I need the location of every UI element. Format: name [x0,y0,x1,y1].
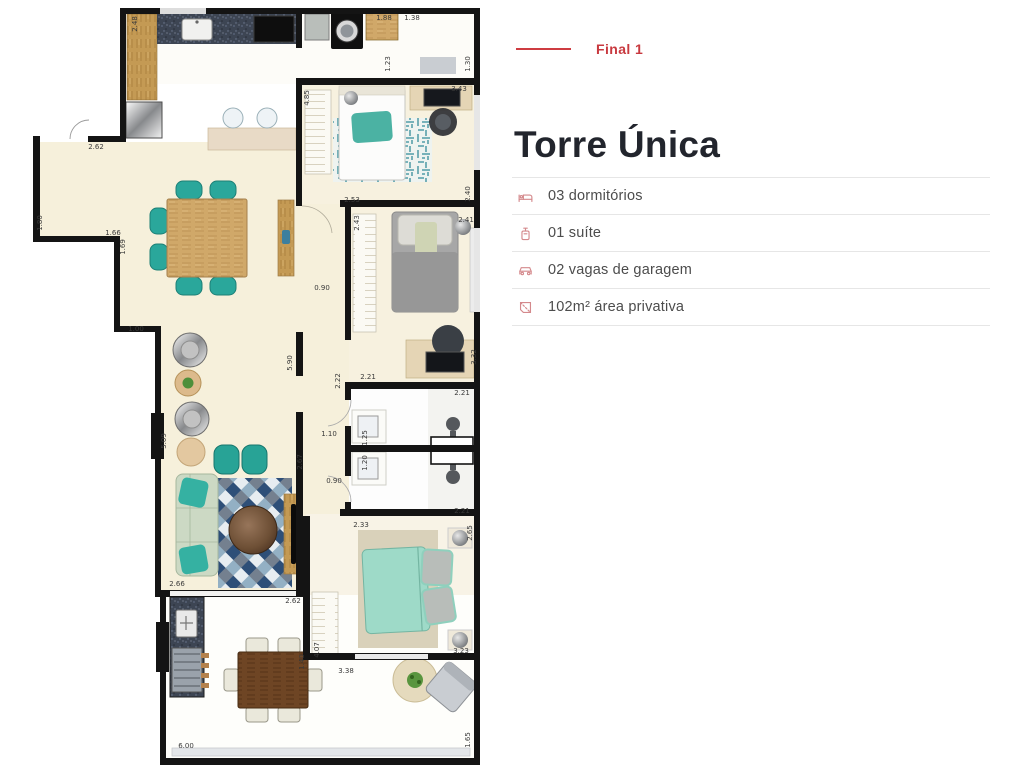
accent-chair [242,445,267,474]
feature-item: 01 suíte [512,215,990,252]
dimension-label: 2.43 [353,215,361,231]
info-panel: Final 1 Torre Única 03 dormitórios01 suí… [512,0,990,768]
suite-icon [517,225,534,242]
dimension-label: 0.90 [326,477,342,485]
dimension-label: 1.20 [361,455,369,471]
cooktop [254,16,294,42]
dimension-label: 1.25 [361,430,369,446]
dimension-label: 4.85 [303,90,311,106]
accent-line [516,48,571,50]
dimension-label: 1.38 [404,14,420,22]
balustrade [172,748,470,756]
shower-head [446,470,460,484]
dimension-label: 2.65 [466,525,474,541]
dimension-label: 2.21 [360,373,376,381]
dimension-label: 1.00 [128,325,144,333]
dimension-label: 3.38 [338,667,354,675]
dimension-label: 1.88 [376,14,392,22]
pillow [177,477,209,509]
pillow [421,586,456,625]
door-arc [70,120,89,139]
dimension-label: 0.90 [314,284,330,292]
dimension-label: 1.65 [464,732,472,748]
dining-table [167,199,247,277]
pillow [351,111,393,144]
dimension-label: 1.30 [464,56,472,72]
page-title: Torre Única [514,124,720,166]
dimension-label: 3.32 [470,349,478,365]
feature-label: 03 dormitórios [548,188,643,204]
dimension-label: 3.43 [451,85,467,93]
coffee-table [229,506,277,554]
area-icon [517,299,534,316]
floor-plan: 2.481.881.381.231.303.434.852.532.402.43… [0,0,500,768]
dimension-label: 5.09 [160,433,168,449]
tv [291,504,296,564]
dimension-label: 5.90 [286,355,294,371]
feature-item: 02 vagas de garagem [512,252,990,289]
stool [223,108,243,128]
breakfast-bar [208,128,296,150]
feature-label: 02 vagas de garagem [548,262,692,278]
plant [407,672,423,688]
pillow [178,544,209,575]
dimension-label: 1.66 [105,229,121,237]
dimension-label: 2.21 [454,507,470,515]
dimension-label: 2.40 [464,186,472,202]
feature-item: 102m² área privativa [512,289,990,326]
stool [257,108,277,128]
bed-icon [517,188,534,205]
feature-item: 03 dormitórios [512,178,990,215]
dimension-label: 2.53 [344,196,360,204]
dimension-label: 2.66 [169,580,185,588]
mat [420,57,456,74]
dimension-label: 1.80 [36,215,44,231]
dimension-label: 1.69 [119,239,127,255]
shower-box [431,451,473,464]
accent-chair [214,445,239,474]
monitor [426,352,464,372]
dimension-label: 2.48 [131,16,139,32]
dimension-label: 2.62 [88,143,104,151]
fridge [126,102,162,138]
dimension-label: 2.22 [334,373,342,389]
side-table [177,438,205,466]
dimension-label: 2.33 [353,521,369,529]
car-icon [517,262,534,279]
plant [183,378,194,389]
dimension-label: 6.00 [178,742,194,750]
dimension-label: 2.21 [454,389,470,397]
dimension-label: 2.67 [296,454,304,470]
final-row: Final 1 [516,41,643,57]
dimension-label: 4.07 [313,642,321,658]
decor-sphere [344,91,358,105]
dimension-label: 1.23 [384,56,392,72]
dimension-label: 1.40 [298,654,306,670]
dimension-label: 2.41 [458,216,474,224]
dimension-label: 3.23 [453,647,469,655]
feature-label: 102m² área privativa [548,299,684,315]
dimension-label: 1.10 [321,430,337,438]
feature-label: 01 suíte [548,225,601,241]
final-label: Final 1 [596,41,643,57]
laundry-tank [305,14,329,40]
feature-list: 03 dormitórios01 suíte02 vagas de garage… [512,177,990,326]
shower-head [446,417,460,431]
pillow [421,549,453,586]
dimension-label: 2.62 [285,597,301,605]
lamp [452,632,468,648]
